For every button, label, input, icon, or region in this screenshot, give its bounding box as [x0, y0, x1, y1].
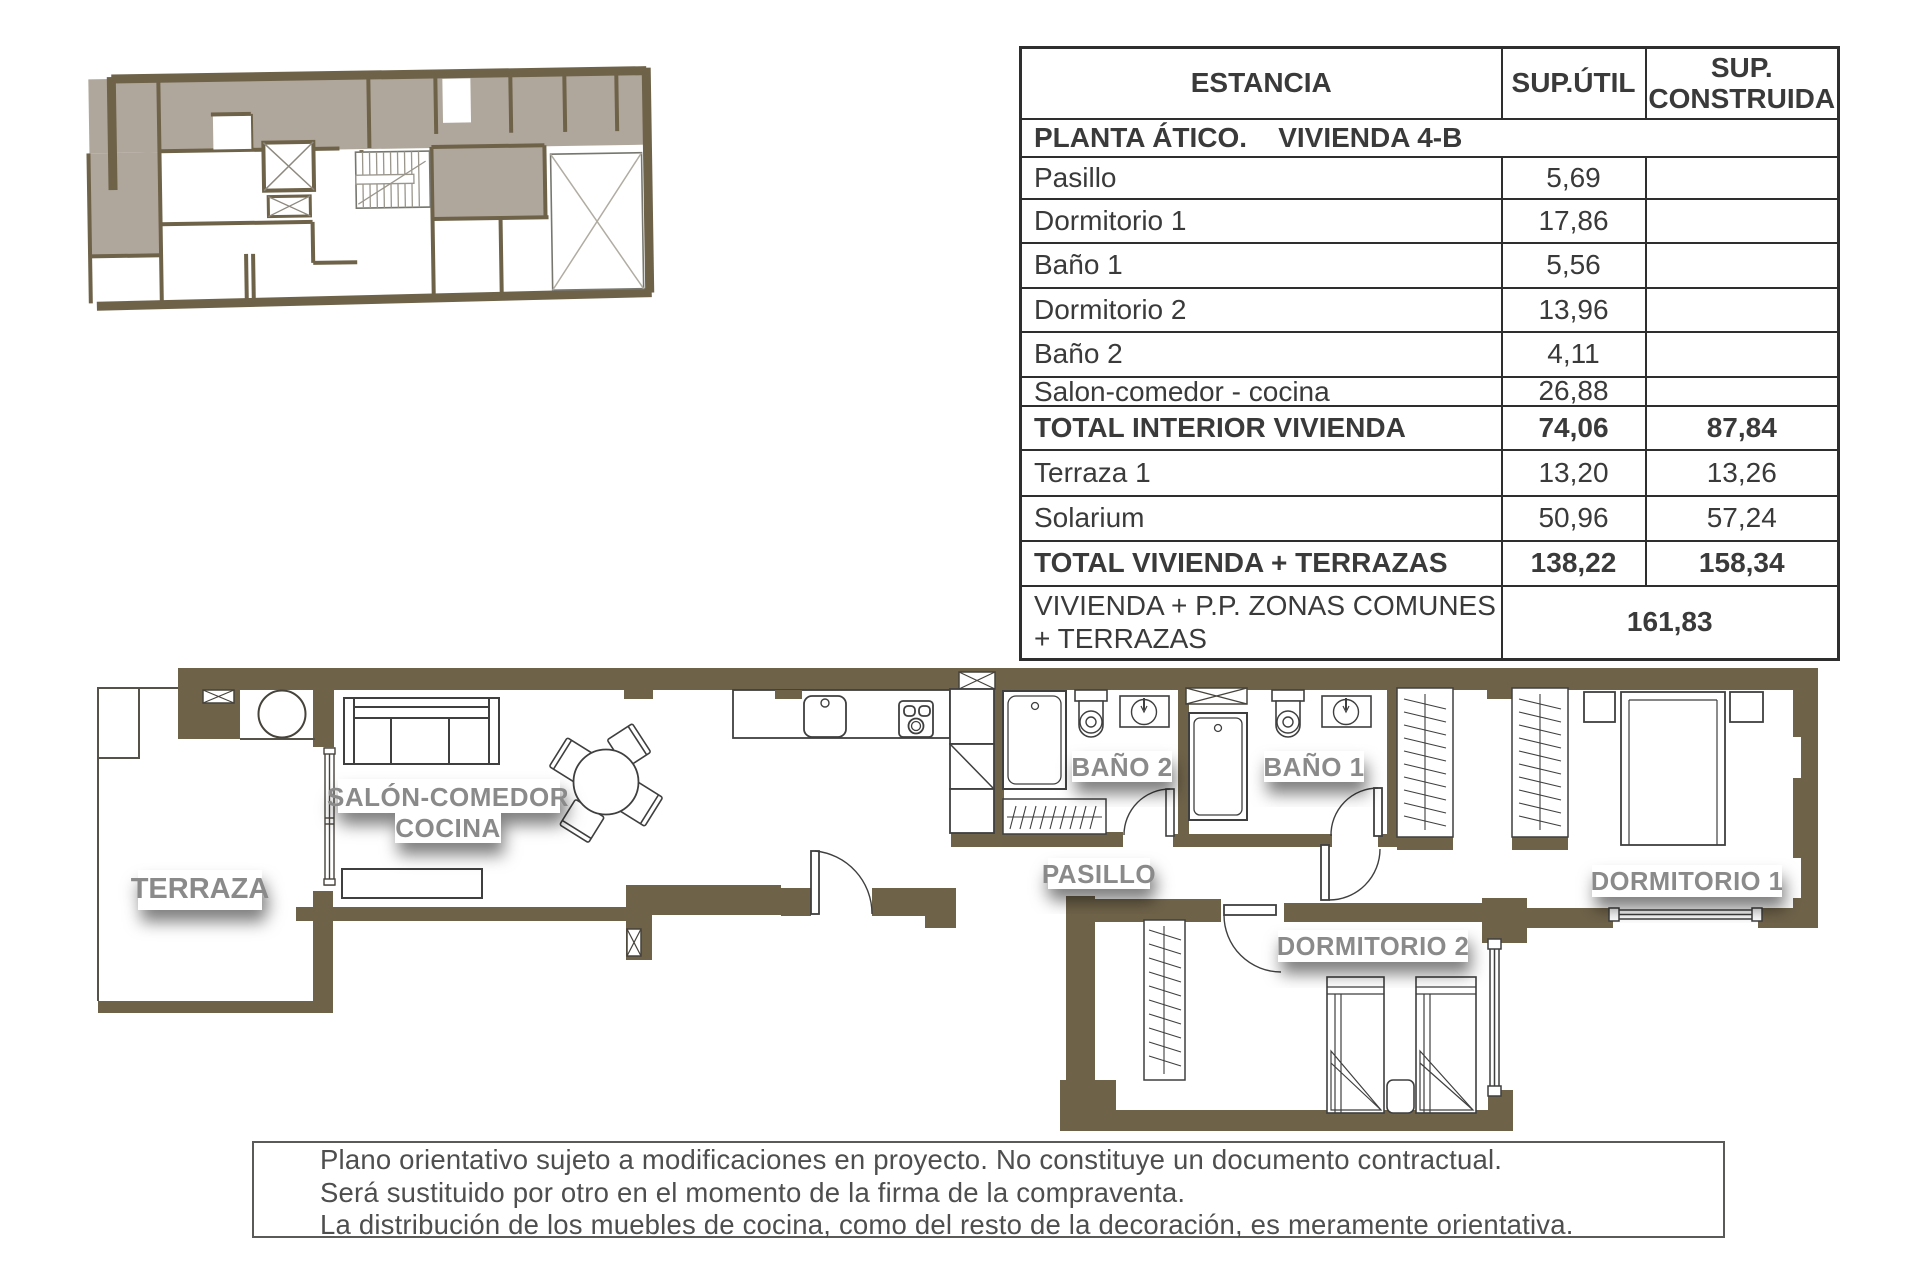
- svg-text:BAÑO 1: BAÑO 1: [1263, 752, 1364, 782]
- svg-text:COCINA: COCINA: [395, 813, 501, 843]
- svg-text:BAÑO 2: BAÑO 2: [1071, 752, 1172, 782]
- svg-text:SALÓN-COMEDOR: SALÓN-COMEDOR: [327, 782, 569, 812]
- svg-text:DORMITORIO 1: DORMITORIO 1: [1591, 868, 1784, 896]
- svg-text:TERRAZA: TERRAZA: [131, 873, 270, 905]
- svg-text:PASILLO: PASILLO: [1042, 859, 1156, 889]
- svg-text:DORMITORIO 2: DORMITORIO 2: [1277, 933, 1470, 961]
